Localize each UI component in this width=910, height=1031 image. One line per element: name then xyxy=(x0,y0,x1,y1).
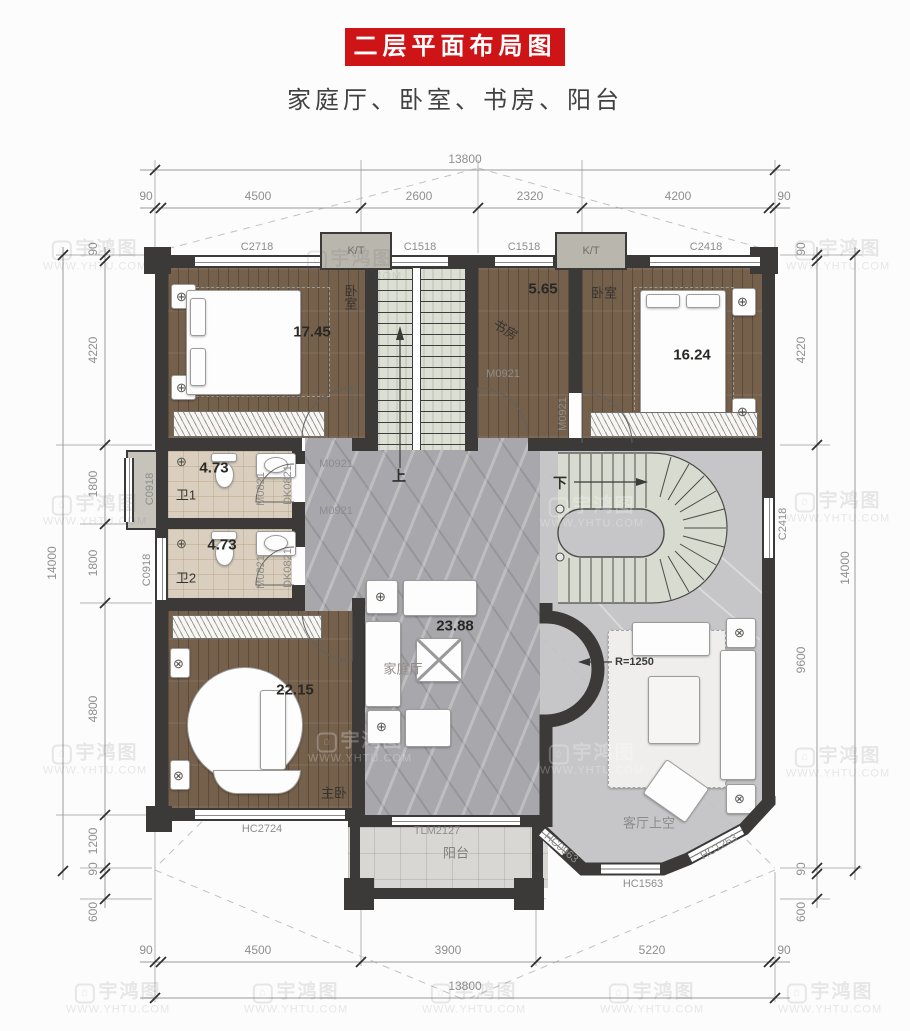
brand-logo-icon: ⌂ xyxy=(786,984,806,1004)
dim-label: 600 xyxy=(86,899,100,925)
wall-master-top xyxy=(155,598,302,611)
wall-master-top xyxy=(352,598,365,611)
opening-code: C0918 xyxy=(141,554,153,586)
balcony-post xyxy=(514,878,544,910)
watermark: ⌂宇鸿图WWW.YHTU.COM xyxy=(600,977,704,1016)
opening-code: K/T xyxy=(582,245,599,257)
wall-balcony-bottom xyxy=(374,888,514,899)
dim-label: 4200 xyxy=(662,189,695,203)
fan-icon: ⊗ xyxy=(173,769,184,782)
page-subtitle: 家庭厅、卧室、书房、阳台 xyxy=(0,80,910,115)
watermark: ⌂宇鸿图WWW.YHTU.COM xyxy=(778,977,882,1016)
wardrobe xyxy=(173,411,325,437)
room-name-bedroom1: 卧室 xyxy=(341,284,360,310)
sofa xyxy=(632,622,710,656)
wall-bedroom1-stair xyxy=(365,268,378,438)
room-area-bedroom2: 16.24 xyxy=(673,347,711,364)
dim-label: 4220 xyxy=(794,334,808,367)
wall-bath-divider xyxy=(155,518,305,529)
wall-stair-study xyxy=(465,268,478,451)
sofa xyxy=(405,709,451,747)
room-area-bath1: 4.73 xyxy=(199,460,228,477)
bed-bench xyxy=(260,690,286,770)
dim-label: 1800 xyxy=(86,468,100,501)
fan-icon: ⊕ xyxy=(376,720,387,733)
wardrobe xyxy=(172,615,322,639)
dim-label: 600 xyxy=(794,899,808,925)
balcony-post xyxy=(344,878,374,910)
brand-logo-icon: ⌂ xyxy=(252,984,272,1004)
opening-code: C2718 xyxy=(241,241,273,253)
dim-label: 90 xyxy=(774,189,793,203)
brand-logo-icon: ⌂ xyxy=(794,748,814,768)
coffee-table xyxy=(416,638,462,682)
dim-label: 90 xyxy=(136,189,155,203)
room-area-study: 5.65 xyxy=(528,281,557,298)
dim-label: 90 xyxy=(794,239,808,258)
curved-stair xyxy=(558,453,727,603)
opening-code: M0821 xyxy=(255,472,267,506)
chaise-sofa xyxy=(720,650,756,780)
fan-icon: ⊕ xyxy=(737,295,748,308)
corner-post xyxy=(144,247,171,274)
loveseat-sofa xyxy=(403,580,477,616)
dim-label: 2600 xyxy=(403,189,436,203)
dim-label: 2320 xyxy=(514,189,547,203)
opening-code: M0921 xyxy=(319,505,353,517)
window-c1518 xyxy=(495,255,553,268)
pillow xyxy=(190,348,206,386)
straight-stair-floor xyxy=(378,268,465,450)
dim-label: 1200 xyxy=(86,825,100,858)
opening-code: K/T xyxy=(347,245,364,257)
dim-label: 13800 xyxy=(445,979,484,993)
room-name-master: 主卧 xyxy=(321,783,347,802)
room-name-bath2: 卫2 xyxy=(176,568,196,587)
stair-stringer xyxy=(412,268,421,450)
wall-row1 xyxy=(352,438,378,451)
opening-code: M0821 xyxy=(255,555,267,589)
brand-logo-icon: ⌂ xyxy=(794,493,814,513)
dim-label: 5220 xyxy=(636,943,669,957)
room-name-balcony: 阳台 xyxy=(443,843,469,862)
brand-logo-icon: ⌂ xyxy=(51,496,71,516)
room-name-bath1: 卫1 xyxy=(176,485,196,504)
opening-code: DK0821 xyxy=(282,548,294,588)
dim-label: 4220 xyxy=(86,334,100,367)
corner-post xyxy=(146,806,172,832)
room-area-master: 22.15 xyxy=(276,682,314,699)
shower-drain-icon: ⊕ xyxy=(176,455,187,468)
room-area-bath2: 4.73 xyxy=(207,537,236,554)
window-c2718 xyxy=(195,255,320,268)
window-c0918 xyxy=(155,538,168,600)
room-name-family: 家庭厅 xyxy=(383,659,422,678)
stair-down-label: 下 xyxy=(553,473,567,493)
brand-logo-icon: ⌂ xyxy=(548,498,568,518)
opening-code: C0918 xyxy=(144,473,156,505)
brand-logo-icon: ⌂ xyxy=(548,745,568,765)
shower-drain-icon: ⊕ xyxy=(176,537,187,550)
wardrobe xyxy=(590,412,758,437)
window-c2418-right xyxy=(762,498,775,558)
dim-label: 9600 xyxy=(794,644,808,677)
door-gap-bedroom2 xyxy=(569,393,582,438)
opening-code: C1518 xyxy=(404,241,436,253)
radius-annotation: R=1250 xyxy=(615,656,654,668)
opening-code: C2418 xyxy=(690,241,722,253)
watermark: ⌂宇鸿图WWW.YHTU.COM xyxy=(244,977,348,1016)
floor-plan-page: ⊕ ⊕ ⊕ ⊕ ⊕ ⊕ ⊗ ⊗ ⊕ ⊕ ⊗ ⊗ xyxy=(0,0,910,1031)
window-c2418-top xyxy=(650,255,760,268)
opening-code: C2418 xyxy=(777,508,789,540)
dim-label: 90 xyxy=(794,859,808,878)
window-c1518 xyxy=(392,255,448,268)
opening-code: HC2724 xyxy=(242,823,282,835)
dim-label: 13800 xyxy=(445,152,484,166)
dim-label: 4500 xyxy=(242,943,275,957)
wall-row1 xyxy=(528,438,775,451)
stair-up-label: 上 xyxy=(392,466,406,486)
fan-icon: ⊗ xyxy=(734,626,745,639)
opening-code: HC1263 xyxy=(699,832,740,863)
room-area-bedroom1: 17.45 xyxy=(293,324,331,341)
dim-label: 1800 xyxy=(86,547,100,580)
handrail-post xyxy=(556,553,564,561)
fan-icon: ⊕ xyxy=(176,381,187,394)
bed-rug xyxy=(213,770,301,794)
room-name-bedroom2: 卧室 xyxy=(591,283,617,302)
dim-label: 90 xyxy=(86,239,100,258)
dim-label: 3900 xyxy=(432,943,465,957)
opening-code: M0921 xyxy=(319,458,353,470)
opening-code: DK0821 xyxy=(282,465,294,505)
rug-table xyxy=(648,676,700,744)
dim-label: 90 xyxy=(136,943,155,957)
window-c0918 xyxy=(124,458,134,522)
dim-label: 4500 xyxy=(242,189,275,203)
watermark: ⌂宇鸿图WWW.YHTU.COM xyxy=(540,491,644,530)
fan-icon: ⊕ xyxy=(176,290,187,303)
room-name-void: 客厅上空 xyxy=(623,813,675,832)
fan-icon: ⊗ xyxy=(734,792,745,805)
pillow xyxy=(686,294,720,308)
wall-row1 xyxy=(155,438,302,451)
fan-icon: ⊕ xyxy=(375,590,386,603)
dim-label: 90 xyxy=(86,859,100,878)
stair-well xyxy=(558,509,664,557)
fan-icon: ⊗ xyxy=(173,657,184,670)
opening-code: TLM2127 xyxy=(414,825,460,837)
room-area-family: 23.88 xyxy=(436,618,474,635)
dim-label: 14000 xyxy=(45,543,59,582)
watermark: ⌂宇鸿图WWW.YHTU.COM xyxy=(66,977,170,1016)
fan-icon: ⊕ xyxy=(737,405,748,418)
opening-code: M0921 xyxy=(486,368,520,380)
pillow xyxy=(646,294,680,308)
wall-master-right xyxy=(352,611,365,821)
dim-label: 90 xyxy=(774,943,793,957)
brand-logo-icon: ⌂ xyxy=(608,984,628,1004)
stair-treads xyxy=(569,454,646,602)
brand-logo-icon: ⌂ xyxy=(51,745,71,765)
opening-code: M0921 xyxy=(557,397,569,431)
watermark: ⌂宇鸿图WWW.YHTU.COM xyxy=(786,486,890,525)
opening-code: HC1563 xyxy=(623,878,663,890)
curved-wall xyxy=(546,603,598,827)
brand-logo-icon: ⌂ xyxy=(51,241,71,261)
dim-label: 4800 xyxy=(86,693,100,726)
page-title: 二层平面布局图 xyxy=(345,28,565,66)
watermark: ⌂宇鸿图WWW.YHTU.COM xyxy=(43,738,147,777)
stair-treads-radial xyxy=(660,457,726,600)
pillow xyxy=(190,298,206,336)
dim-label: 14000 xyxy=(838,548,852,587)
watermark: ⌂宇鸿图WWW.YHTU.COM xyxy=(786,741,890,780)
opening-code: C1518 xyxy=(508,241,540,253)
handrail-post xyxy=(556,505,564,513)
brand-logo-icon: ⌂ xyxy=(74,984,94,1004)
window-hc2724 xyxy=(195,808,345,821)
